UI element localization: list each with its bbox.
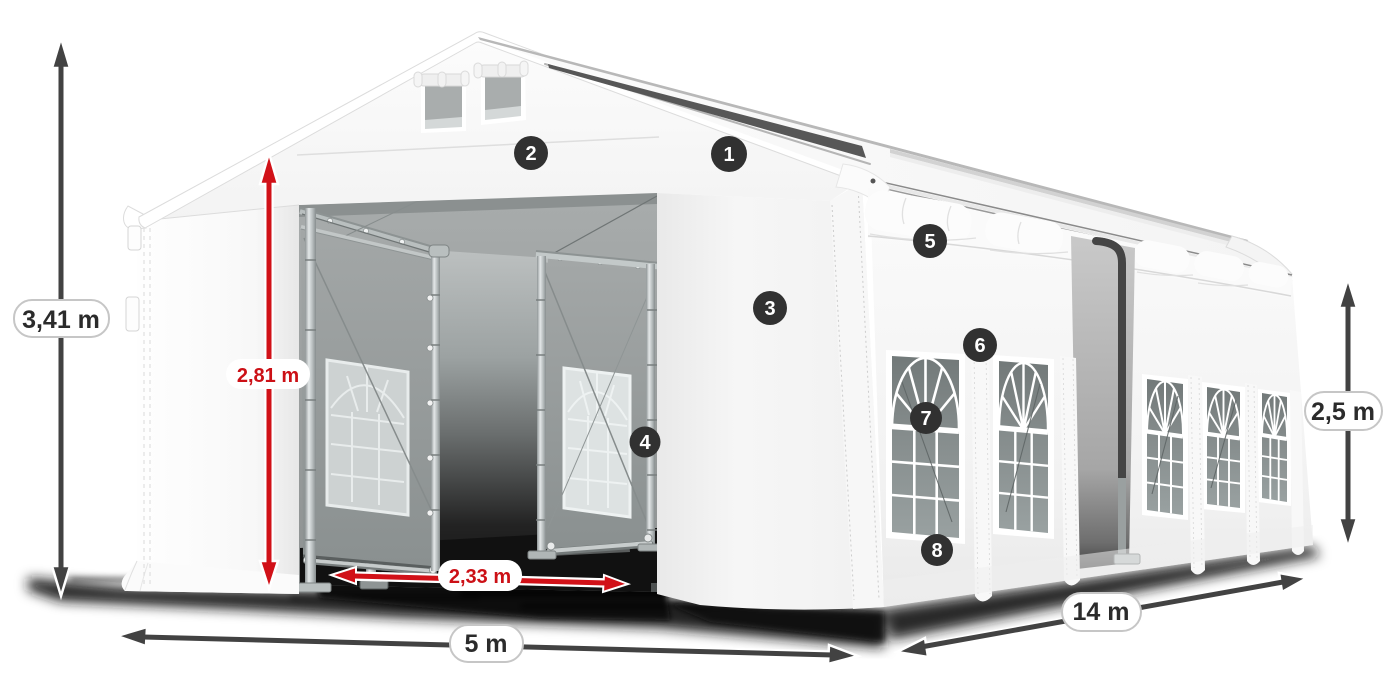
svg-text:2,5 m: 2,5 m (1311, 398, 1375, 426)
svg-text:6: 6 (974, 335, 985, 357)
svg-text:5 m: 5 m (464, 630, 507, 658)
svg-text:1: 1 (723, 144, 734, 166)
svg-text:2,81 m: 2,81 m (237, 365, 299, 387)
svg-text:14 m: 14 m (1073, 598, 1130, 626)
svg-text:8: 8 (931, 540, 942, 562)
svg-text:3: 3 (764, 298, 775, 320)
svg-text:3,41 m: 3,41 m (22, 306, 100, 334)
svg-text:2,33 m: 2,33 m (449, 566, 511, 588)
svg-text:5: 5 (924, 231, 935, 253)
svg-text:2: 2 (525, 143, 536, 165)
svg-text:7: 7 (920, 408, 931, 430)
svg-text:4: 4 (639, 432, 651, 454)
